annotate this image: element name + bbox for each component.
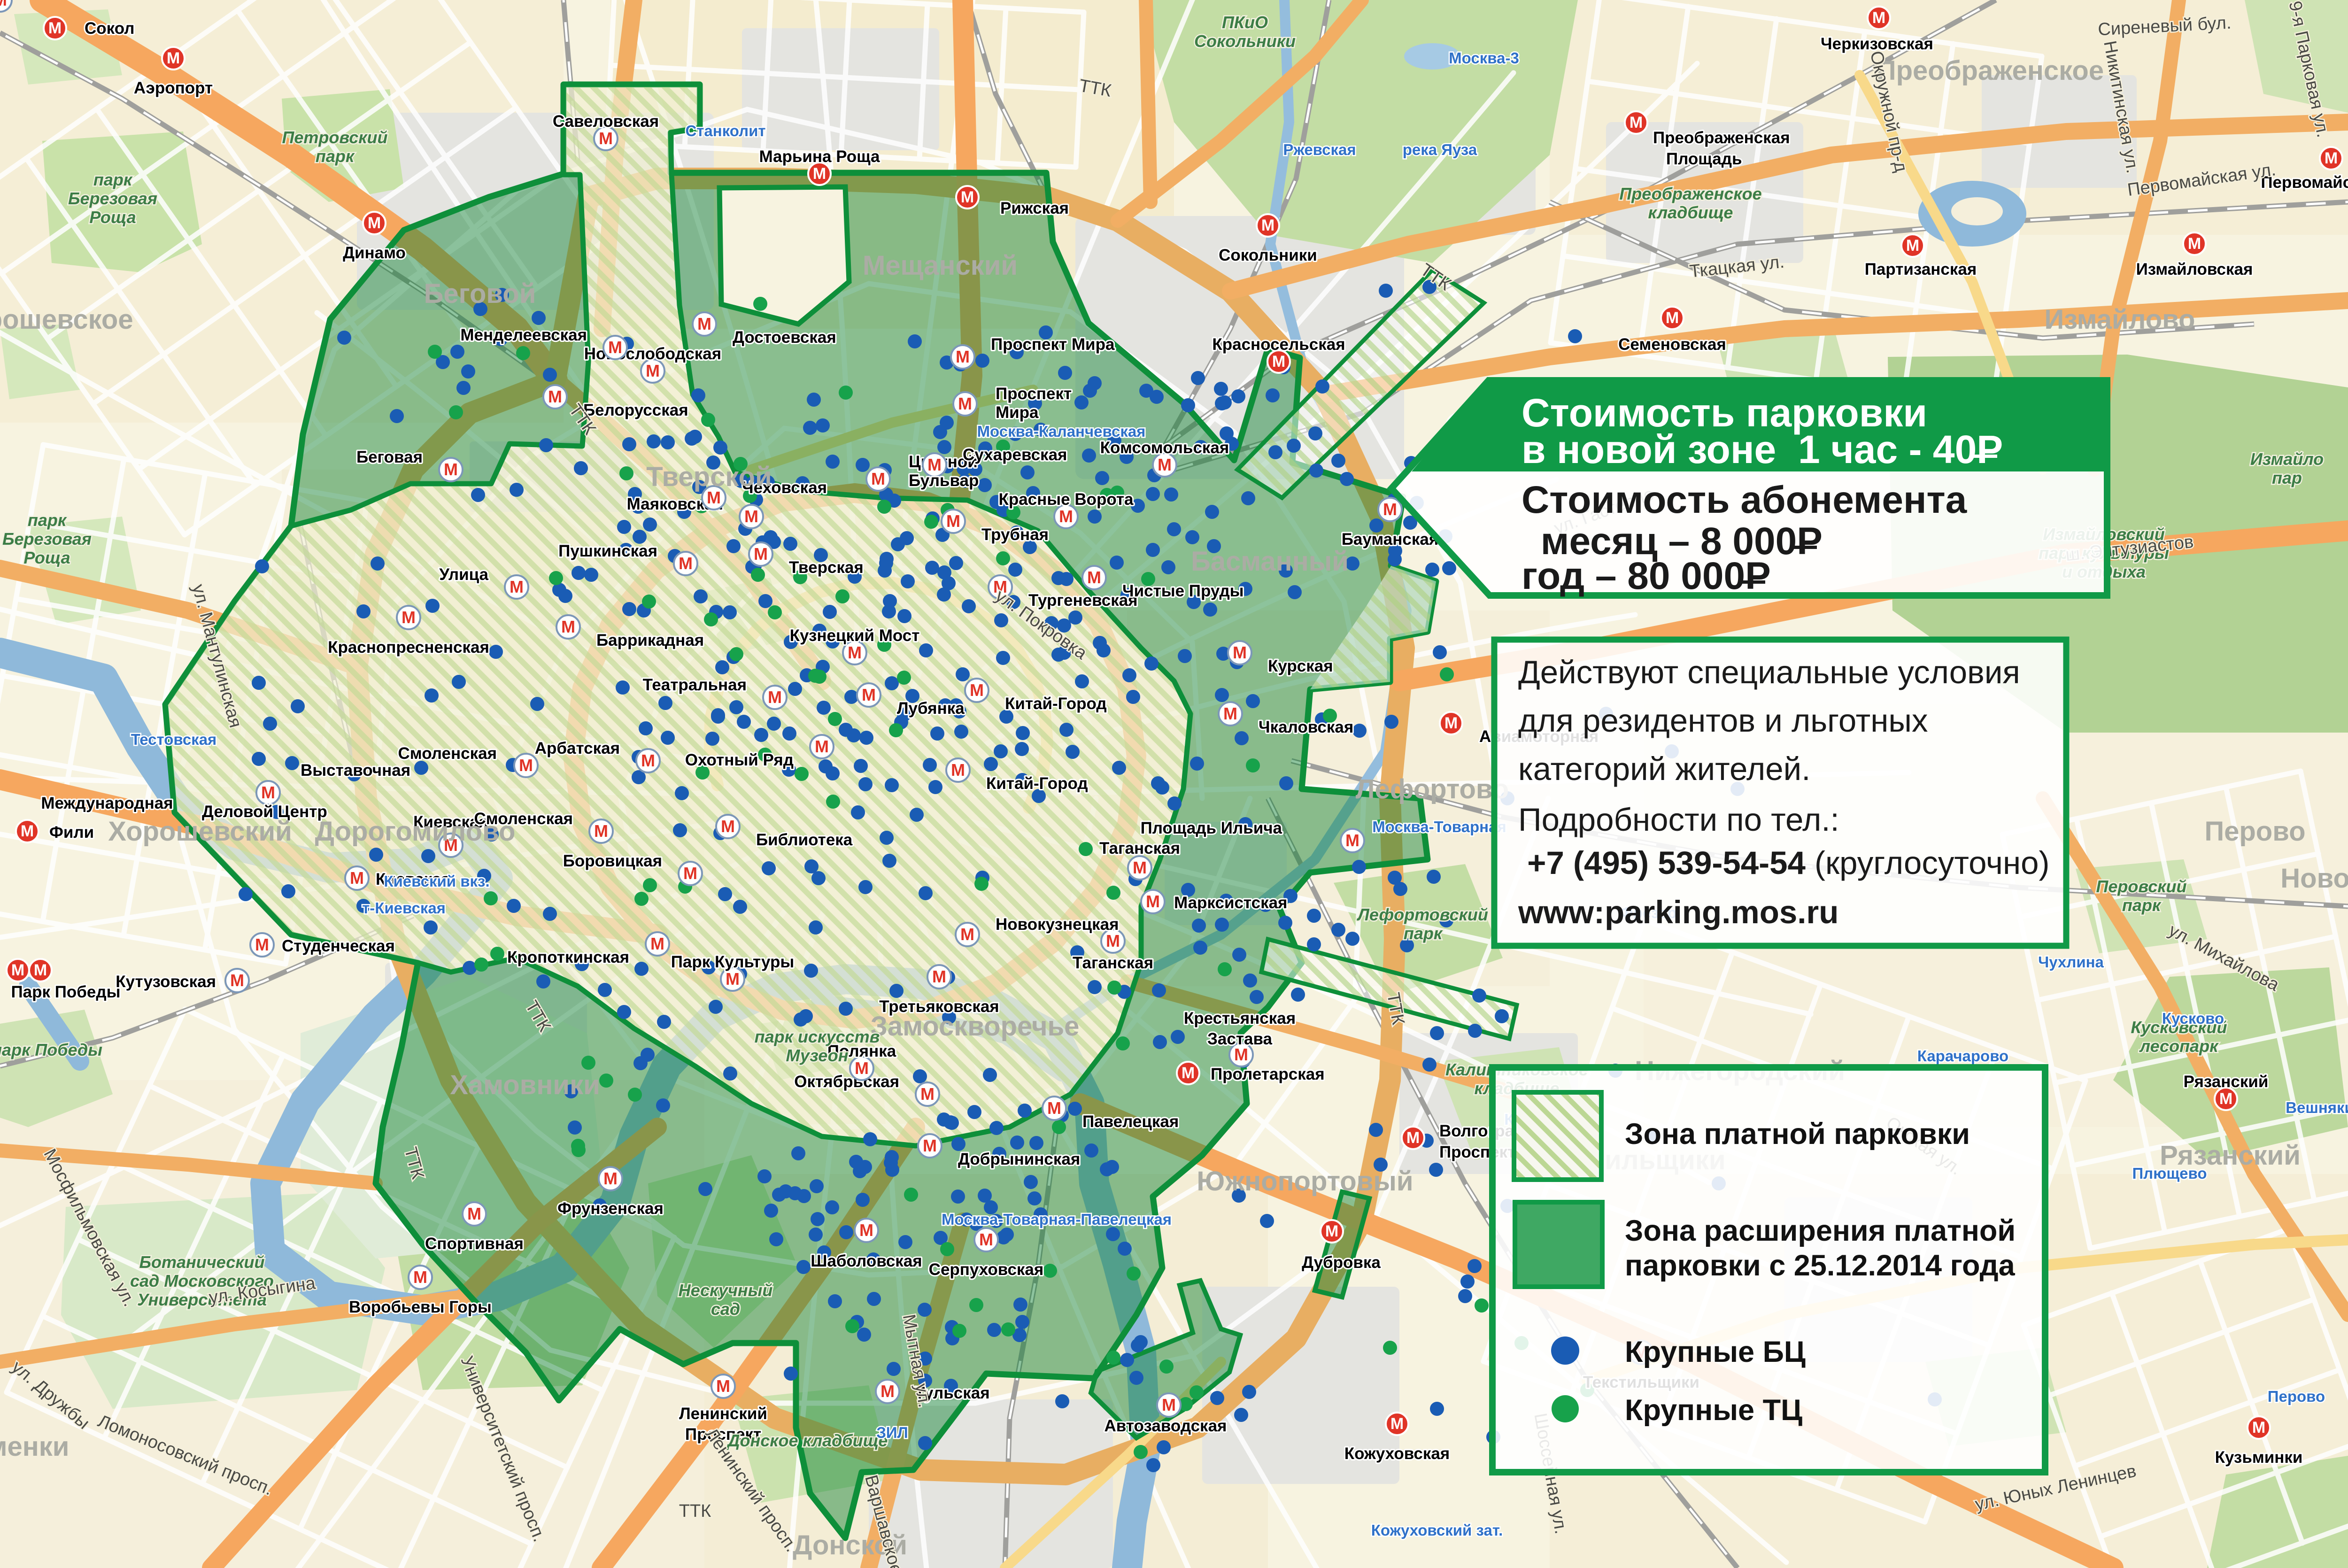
svg-text:Преображенское: Преображенское [1619, 184, 1761, 203]
svg-text:М: М [646, 361, 660, 380]
svg-text:Перово: Перово [2268, 1388, 2325, 1405]
svg-text:Измайловская: Измайловская [2136, 260, 2253, 278]
svg-text:Мира: Мира [996, 403, 1039, 422]
svg-text:М: М [1146, 892, 1160, 911]
svg-text:М: М [920, 1084, 935, 1104]
svg-text:Студенческая: Студенческая [282, 937, 395, 955]
svg-text:Площадь Ильича: Площадь Ильича [1141, 819, 1282, 837]
svg-text:М: М [1872, 9, 1885, 27]
svg-text:www:parking.mos.ru: www:parking.mos.ru [1518, 894, 1838, 930]
svg-text:М: М [650, 934, 664, 953]
svg-text:М: М [21, 822, 34, 840]
svg-text:Лефортовский: Лефортовский [1356, 905, 1488, 924]
svg-text:Чухлина: Чухлина [2038, 953, 2104, 971]
svg-text:Зона расширения платной: Зона расширения платной [1625, 1214, 2016, 1247]
svg-text:Боровицкая: Боровицкая [563, 852, 662, 870]
svg-text:Беговой: Беговой [424, 278, 536, 309]
svg-text:М: М [1233, 643, 1247, 662]
svg-text:ТТК: ТТК [679, 1501, 711, 1521]
svg-text:в новой зоне 1 час - 40Р: в новой зоне 1 час - 40Р [1522, 427, 2003, 471]
svg-text:категорий жителей.: категорий жителей. [1518, 751, 1810, 787]
svg-text:М: М [561, 617, 575, 636]
svg-text:Южнопортовый: Южнопортовый [1197, 1166, 1413, 1197]
svg-text:Кожуховская: Кожуховская [1344, 1444, 1450, 1463]
svg-text:Библиотека: Библиотека [756, 831, 853, 849]
svg-text:М: М [960, 925, 974, 944]
svg-text:парк искусств: парк искусств [755, 1027, 880, 1046]
svg-text:Кузнецкий Мост: Кузнецкий Мост [790, 626, 920, 645]
svg-text:М: М [599, 129, 613, 148]
svg-text:Подробности по тел.:: Подробности по тел.: [1518, 802, 1839, 838]
svg-text:М: М [608, 338, 622, 357]
svg-text:М: М [1390, 1415, 1404, 1433]
svg-text:Новоги: Новоги [2280, 863, 2348, 894]
svg-text:М: М [34, 961, 47, 979]
svg-text:Карачарово: Карачарово [1917, 1047, 2008, 1065]
svg-text:М: М [2219, 1090, 2232, 1108]
svg-text:Вешняки: Вешняки [2286, 1099, 2348, 1116]
svg-text:М: М [641, 751, 655, 770]
svg-text:М: М [744, 507, 758, 526]
svg-text:Бульвар: Бульвар [909, 471, 979, 490]
svg-text:Донское кладбище: Донское кладбище [726, 1431, 888, 1450]
svg-text:Парк Победы: Парк Победы [11, 983, 121, 1001]
svg-text:М: М [697, 314, 711, 333]
svg-text:Проспект Мира: Проспект Мира [991, 335, 1115, 354]
svg-text:парковки с 25.12.2014 года: парковки с 25.12.2014 года [1625, 1249, 2016, 1282]
svg-text:для резидентов и льготных: для резидентов и льготных [1518, 703, 1928, 739]
svg-text:М: М [961, 188, 974, 206]
svg-text:Баррикадная: Баррикадная [596, 631, 704, 649]
svg-text:М: М [0, 0, 7, 9]
svg-text:М: М [1087, 568, 1101, 587]
svg-text:М: М [1133, 858, 1147, 877]
svg-text:лесопарк: лесопарк [2139, 1036, 2219, 1056]
svg-text:М: М [1630, 114, 1643, 131]
svg-text:Сухаревская: Сухаревская [963, 446, 1067, 464]
svg-text:Лефортово: Лефортово [1356, 774, 1509, 804]
svg-text:Роща: Роща [23, 548, 70, 567]
svg-text:Серпуховская: Серпуховская [929, 1260, 1044, 1279]
svg-text:Крупные БЦ: Крупные БЦ [1625, 1336, 1806, 1368]
svg-text:Фрунзенская: Фрунзенская [557, 1199, 664, 1218]
svg-text:Роща: Роща [89, 208, 136, 227]
svg-text:Тверской: Тверской [646, 462, 772, 492]
svg-text:Ленинский: Ленинский [679, 1405, 767, 1423]
svg-text:Замоскворечье: Замоскворечье [871, 1011, 1080, 1042]
svg-text:Марьина Роща: Марьина Роща [759, 147, 880, 166]
svg-text:М: М [2252, 1419, 2265, 1437]
svg-text:Октябрьская: Октябрьская [794, 1073, 899, 1091]
svg-text:парк Победы: парк Победы [0, 1040, 102, 1059]
svg-text:М: М [167, 49, 180, 67]
svg-text:М: М [859, 1220, 873, 1240]
svg-text:Пушкинская: Пушкинская [558, 542, 657, 560]
svg-text:М: М [848, 643, 862, 662]
svg-text:Москва-3: Москва-3 [1449, 49, 1519, 67]
svg-text:М: М [1406, 1129, 1420, 1147]
svg-text:М: М [855, 1058, 869, 1078]
svg-text:т-Киевская: т-Киевская [362, 899, 446, 917]
svg-text:М: М [444, 460, 458, 479]
svg-text:Сокольники: Сокольники [1219, 246, 1317, 264]
svg-text:Тверская: Тверская [789, 558, 864, 577]
svg-text:Действуют специальные условия: Действуют специальные условия [1518, 654, 2020, 690]
svg-text:Лубянка: Лубянка [897, 699, 965, 718]
svg-text:Воробьевы Горы: Воробьевы Горы [349, 1298, 492, 1316]
svg-text:Новокузнецкая: Новокузнецкая [996, 915, 1119, 934]
svg-text:Березовая: Березовая [2, 529, 92, 548]
svg-text:Менделеевская: Менделеевская [460, 326, 587, 344]
svg-text:М: М [519, 756, 533, 775]
svg-text:М: М [1906, 237, 1919, 255]
svg-text:М: М [679, 554, 693, 573]
svg-text:Плющево: Плющево [2132, 1165, 2207, 1182]
svg-text:М: М [261, 783, 275, 802]
svg-text:Красносельская: Красносельская [1212, 335, 1345, 354]
svg-text:М: М [2325, 149, 2338, 167]
svg-text:Музеон: Музеон [786, 1046, 849, 1065]
svg-text:Хорошевское: Хорошевское [0, 304, 133, 335]
svg-text:Пролетарская: Пролетарская [1211, 1065, 1325, 1083]
svg-text:Таганская: Таганская [1099, 839, 1180, 857]
svg-text:М: М [413, 1267, 427, 1287]
svg-text:М: М [548, 387, 562, 406]
svg-text:Кропоткинская: Кропоткинская [507, 948, 629, 966]
svg-text:год – 80 000Р: год – 80 000Р [1522, 555, 1771, 597]
svg-text:Дорогомилово: Дорогомилово [315, 816, 516, 847]
svg-text:М: М [1261, 216, 1274, 234]
svg-text:М: М [768, 687, 782, 707]
svg-text:М: М [880, 1382, 895, 1401]
svg-text:кладбище: кладбище [1648, 203, 1733, 222]
svg-text:Хорошевский: Хорошевский [108, 816, 292, 847]
svg-text:сад: сад [711, 1299, 740, 1319]
svg-text:М: М [1162, 1395, 1176, 1414]
svg-text:парк: парк [1404, 924, 1443, 943]
svg-text:Марксистская: Марксистская [1174, 894, 1287, 912]
svg-text:М: М [603, 1169, 618, 1188]
svg-text:М: М [683, 864, 697, 883]
svg-text:Киевский вкз.: Киевский вкз. [384, 873, 489, 890]
svg-text:Хамовники: Хамовники [450, 1070, 600, 1100]
svg-text:Семеновская: Семеновская [1618, 335, 1726, 354]
svg-text:М: М [1383, 500, 1397, 519]
svg-text:М: М [721, 817, 735, 836]
svg-text:М: М [1666, 309, 1679, 327]
svg-text:Фили: Фили [49, 823, 94, 842]
svg-text:ЗИЛ: ЗИЛ [876, 1424, 908, 1441]
svg-text:М: М [946, 511, 960, 531]
svg-text:Красные Ворота: Красные Ворота [998, 490, 1134, 509]
svg-text:Парк Культуры: Парк Культуры [671, 953, 795, 971]
svg-text:Тестовская: Тестовская [131, 731, 217, 748]
svg-text:Станколит: Станколит [685, 122, 765, 139]
svg-text:Таганская: Таганская [1073, 954, 1153, 972]
svg-text:Преображенская: Преображенская [1653, 129, 1790, 147]
svg-text:Добрынинская: Добрынинская [958, 1150, 1080, 1168]
svg-text:Беговая: Беговая [356, 448, 423, 466]
svg-text:М: М [951, 760, 965, 780]
svg-text:Проспект: Проспект [996, 385, 1072, 403]
svg-text:Тургеневская: Тургеневская [1028, 591, 1138, 610]
svg-text:М: М [1047, 1098, 1061, 1118]
svg-text:М: М [48, 19, 62, 37]
svg-text:Крупные ТЦ: Крупные ТЦ [1625, 1394, 1802, 1427]
svg-text:Зона платной парковки: Зона платной парковки [1625, 1118, 1970, 1151]
svg-text:М: М [970, 680, 984, 700]
svg-text:Чкаловская: Чкаловская [1259, 718, 1353, 736]
svg-text:ПКиО: ПКиО [1222, 13, 1268, 32]
svg-text:М: М [1272, 353, 1285, 371]
svg-text:М: М [716, 1376, 730, 1396]
svg-text:М: М [1106, 931, 1120, 950]
svg-text:Ботанический: Ботанический [139, 1252, 265, 1272]
svg-text:М: М [813, 165, 826, 183]
svg-text:Березовая: Березовая [68, 189, 157, 208]
svg-text:Крестьянская: Крестьянская [1184, 1009, 1296, 1027]
svg-text:М: М [1158, 455, 1172, 474]
svg-text:Чистые Пруды: Чистые Пруды [1122, 582, 1244, 600]
svg-text:Белорусская: Белорусская [583, 401, 688, 419]
svg-text:М: М [754, 544, 768, 564]
svg-text:Площадь: Площадь [1666, 150, 1742, 168]
svg-text:Павелецкая: Павелецкая [1082, 1112, 1179, 1131]
svg-text:М: М [923, 1136, 937, 1155]
svg-text:М: М [467, 1204, 481, 1223]
svg-text:М: М [255, 935, 269, 954]
svg-text:Спортивная: Спортивная [425, 1235, 524, 1253]
svg-text:М: М [350, 868, 364, 888]
svg-text:парк: парк [93, 170, 133, 189]
svg-text:М: М [1223, 704, 1237, 723]
svg-text:Черкизовская: Черкизовская [1821, 35, 1933, 53]
svg-text:Сокол: Сокол [85, 19, 134, 38]
svg-text:М: М [1182, 1064, 1195, 1082]
svg-text:Сокольники: Сокольники [1194, 31, 1296, 51]
svg-text:Мещанский: Мещанский [863, 250, 1018, 281]
svg-text:М: М [871, 469, 885, 488]
svg-text:М: М [862, 685, 876, 704]
svg-text:М: М [402, 608, 416, 627]
svg-text:парк: парк [2122, 896, 2162, 915]
svg-text:Кузьминки: Кузьминки [2215, 1448, 2303, 1467]
svg-text:Комсомольская: Комсомольская [1100, 439, 1229, 457]
svg-text:Кусково: Кусково [2162, 1010, 2224, 1027]
svg-text:М: М [11, 961, 24, 979]
svg-text:М: М [1059, 507, 1073, 526]
svg-text:Краснопресненская: Краснопресненская [328, 638, 489, 657]
svg-text:М: М [956, 347, 970, 366]
svg-text:Арбатская: Арбатская [535, 739, 620, 757]
svg-text:Аэропорт: Аэропорт [134, 79, 213, 97]
svg-text:Театральная: Театральная [643, 676, 747, 694]
svg-text:М: М [510, 577, 524, 596]
svg-text:Бауманская: Бауманская [1342, 530, 1439, 548]
svg-text:Измайло: Измайло [2250, 449, 2324, 469]
svg-text:М: М [2188, 235, 2201, 253]
svg-text:пар: пар [2272, 468, 2302, 487]
svg-text:Кутузовская: Кутузовская [116, 973, 216, 991]
svg-text:+7 (495) 539-54-54 (круглосуто: +7 (495) 539-54-54 (круглосуточно) [1518, 845, 2049, 881]
svg-text:Москва-Товарная: Москва-Товарная [1372, 818, 1506, 835]
svg-text:М: М [726, 969, 740, 989]
svg-text:Улица: Улица [439, 565, 488, 584]
svg-text:Стоимость абонемента: Стоимость абонемента [1522, 479, 1968, 521]
svg-text:Савеловская: Савеловская [553, 112, 659, 131]
svg-text:М: М [979, 1230, 993, 1249]
svg-text:Преображенское: Преображенское [1877, 55, 2104, 86]
svg-text:Дубровка: Дубровка [1302, 1253, 1381, 1272]
svg-text:М: М [1444, 714, 1458, 732]
svg-text:Перово: Перово [2204, 816, 2305, 847]
svg-text:Достоевская: Достоевская [733, 328, 836, 347]
svg-text:Партизанская: Партизанская [1865, 260, 1977, 278]
svg-text:М: М [594, 821, 608, 841]
svg-text:Китай-Город: Китай-Город [986, 774, 1088, 793]
svg-text:парк: парк [316, 147, 355, 166]
svg-text:Курская: Курская [1268, 657, 1333, 675]
svg-text:Шаболовская: Шаболовская [811, 1252, 922, 1270]
svg-text:Перовский: Перовский [2096, 877, 2187, 896]
svg-text:М: М [230, 971, 244, 990]
svg-text:Москва-Товарная-Павелецкая: Москва-Товарная-Павелецкая [942, 1211, 1172, 1228]
svg-text:М: М [368, 214, 381, 232]
svg-text:Смоленская: Смоленская [398, 744, 497, 763]
svg-text:Москва-Каланчевская: Москва-Каланчевская [977, 423, 1146, 440]
svg-text:Кожуховский зат.: Кожуховский зат. [1371, 1522, 1503, 1539]
svg-text:М: М [958, 394, 972, 413]
svg-text:Ржевская: Ржевская [1283, 141, 1356, 158]
svg-text:менки: менки [0, 1431, 69, 1462]
svg-text:парк: парк [28, 510, 67, 530]
svg-text:М: М [1325, 1222, 1338, 1240]
svg-text:Китай-Город: Китай-Город [1005, 695, 1107, 713]
svg-text:Выставочная: Выставочная [301, 761, 410, 780]
svg-text:М: М [815, 737, 829, 756]
svg-text:Петровский: Петровский [282, 128, 388, 147]
svg-text:Измайлово: Измайлово [2045, 304, 2195, 335]
svg-text:М: М [932, 967, 946, 986]
svg-text:Международная: Международная [41, 794, 173, 812]
svg-text:Нескучный: Нескучный [679, 1281, 773, 1300]
svg-text:Охотный Ряд: Охотный Ряд [685, 751, 794, 769]
svg-text:Трубная: Трубная [981, 525, 1049, 544]
svg-text:река Яуза: река Яуза [1403, 141, 1477, 158]
svg-text:Автозаводская: Автозаводская [1104, 1417, 1227, 1435]
svg-text:Рижская: Рижская [1000, 199, 1069, 217]
svg-text:Застава: Застава [1207, 1030, 1273, 1048]
svg-text:М: М [1345, 831, 1359, 850]
svg-text:Рязанский: Рязанский [2184, 1073, 2269, 1091]
svg-text:Динамо: Динамо [343, 244, 406, 262]
svg-text:Басманный: Басманный [1191, 546, 1349, 577]
